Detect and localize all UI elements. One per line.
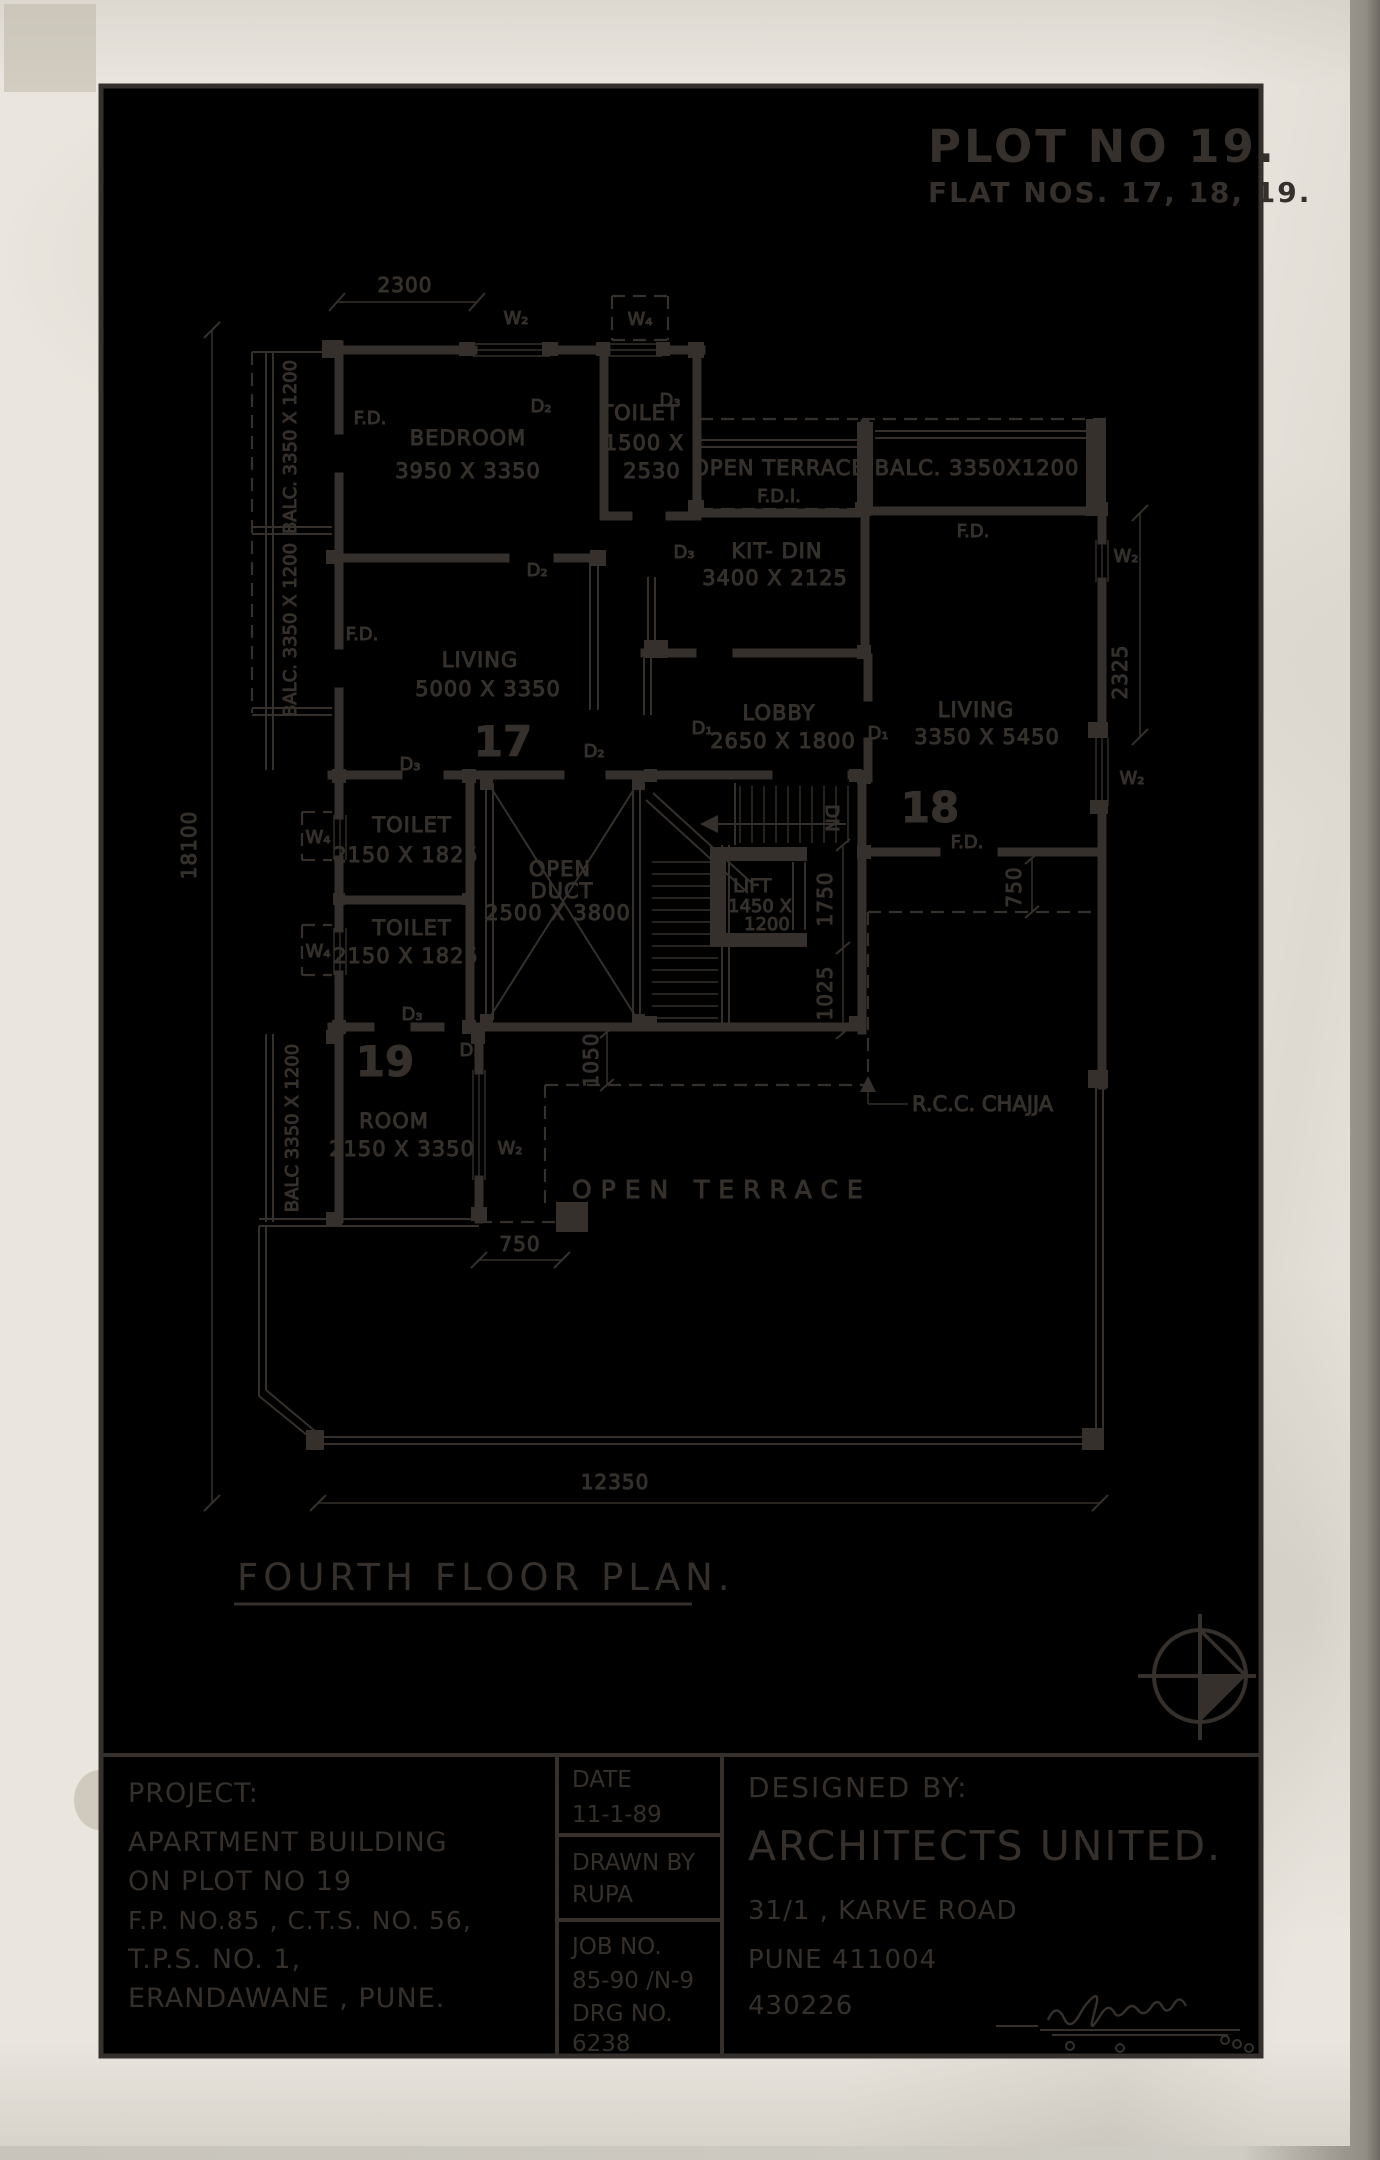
toilet-a-size: 2150 X 1825 <box>333 843 479 867</box>
door-tag-d2-c: D₂ <box>583 741 604 762</box>
open-terrace-top-label: OPEN TERRACE <box>692 456 865 480</box>
room19-label: ROOM <box>359 1109 429 1133</box>
firm-phone: 430226 <box>748 1991 853 2021</box>
job-no-label: JOB NO. <box>570 1934 662 1960</box>
flat-numbers-subtitle: FLAT NOS. 17, 18, 19. <box>928 176 1311 209</box>
door-tag-d1-b: D₁ <box>867 723 888 744</box>
window-tag-w2-right-upper: W₂ <box>1113 546 1138 567</box>
fd-label-balcony18: F.D. <box>957 521 990 542</box>
project-line-1: APARTMENT BUILDING <box>128 1827 448 1858</box>
dim-left: 18100 <box>177 811 201 880</box>
job-no-value: 85-90 /N-9 <box>572 1968 694 1994</box>
door-tag-d2-b: D₂ <box>526 560 547 581</box>
dim-top: 2300 <box>378 273 433 297</box>
fdi-label-terrace: F.D.I. <box>757 486 801 507</box>
date-value: 11-1-89 <box>572 1802 662 1828</box>
door-tag-d3-d: D₃ <box>401 1004 422 1025</box>
toilet-top-size-b: 2530 <box>623 459 680 483</box>
bedroom-label: BEDROOM <box>410 426 527 450</box>
dim-stair-lower: 1025 <box>813 966 837 1021</box>
drawing-frame <box>101 86 1261 2056</box>
lift-label: LIFT <box>733 875 772 897</box>
toilet-top-label: TOILET <box>599 401 679 425</box>
balcony-left-upper-label: BALC. 3350 X 1200 <box>280 360 301 534</box>
lobby-label: LOBBY <box>743 701 816 725</box>
living18-size: 3350 X 5450 <box>914 725 1060 749</box>
firm-name: ARCHITECTS UNITED. <box>748 1822 1222 1870</box>
living17-label: LIVING <box>442 648 518 672</box>
door-tag-d3-c: D₃ <box>399 754 420 775</box>
plan-title: FOURTH FLOOR PLAN. <box>237 1556 735 1599</box>
window-tag-w4-toilet-a: W₄ <box>305 827 330 848</box>
door-tag-d2-a: D₂ <box>530 396 551 417</box>
floor-plan-drawing: PLOT NO 19. FLAT NOS. 17, 18, 19. <box>0 0 1380 2160</box>
sheet-header: PLOT NO 19. FLAT NOS. 17, 18, 19. <box>928 120 1311 209</box>
project-label: PROJECT: <box>128 1778 259 1809</box>
open-duct-label-b: DUCT <box>530 879 593 903</box>
toilet-b-size: 2150 X 1825 <box>333 944 479 968</box>
window-tag-w4-top: W₄ <box>627 309 652 330</box>
door-tag-d3-b: D₃ <box>673 542 694 563</box>
kit-din-label: KIT- DIN <box>731 539 822 563</box>
living18-label: LIVING <box>938 698 1014 722</box>
project-line-5: ERANDAWANE , PUNE. <box>128 1983 445 2014</box>
kit-din-size: 3400 X 2125 <box>702 566 848 590</box>
dim-bottom: 12350 <box>581 1470 650 1494</box>
window-tag-w2-room19: W₂ <box>497 1138 522 1159</box>
toilet-a-label: TOILET <box>371 813 451 837</box>
balcony-left-lower-label: BALC. 3350 X 1200 <box>280 543 301 717</box>
window-tag-w2-top: W₂ <box>503 308 528 329</box>
scanned-drawing-page: { "header": { "plot_no": "PLOT NO 19.", … <box>0 0 1380 2160</box>
dim-terrace-gap: 1050 <box>579 1033 603 1088</box>
window-tag-w4-toilet-b: W₄ <box>305 941 330 962</box>
rcc-chajja-label: R.C.C. CHAJJA <box>912 1092 1054 1116</box>
open-duct-size: 2500 X 3800 <box>485 901 631 925</box>
drawn-by-label: DRAWN BY <box>572 1850 696 1876</box>
stair-down-label: DN <box>821 804 842 831</box>
drg-no-value: 6238 <box>572 2031 631 2057</box>
dim-balc-gap: 750 <box>499 1232 540 1256</box>
project-line-2: ON PLOT NO 19 <box>128 1866 352 1897</box>
firm-address-2: PUNE 411004 <box>748 1945 937 1975</box>
flat-number-18: 18 <box>901 783 959 832</box>
window-tag-w2-right-lower: W₂ <box>1119 768 1144 789</box>
date-label: DATE <box>572 1767 632 1793</box>
drawn-by-value: RUPA <box>572 1882 633 1908</box>
fd-label-corridor18: F.D. <box>951 832 984 853</box>
living17-size: 5000 X 3350 <box>415 677 561 701</box>
open-terrace-bottom-word-b: TERRACE <box>693 1175 872 1204</box>
fd-label-bedroom: F.D. <box>354 408 387 429</box>
dim-corridor: 750 <box>1002 866 1026 907</box>
balcony-top-label: BALC. 3350X1200 <box>875 456 1080 480</box>
door-tag-d1-c: D₁ <box>459 1040 480 1061</box>
flat-number-19: 19 <box>356 1037 414 1086</box>
plot-number-title: PLOT NO 19. <box>928 120 1277 173</box>
lift-size-b: 1200 <box>744 914 790 935</box>
fd-label-living17: F.D. <box>346 624 379 645</box>
flat-number-17: 17 <box>474 717 532 766</box>
drg-no-label: DRG NO. <box>572 2001 673 2027</box>
room19-size: 2150 X 3350 <box>329 1137 475 1161</box>
toilet-b-label: TOILET <box>371 916 451 940</box>
bedroom-size: 3950 X 3350 <box>395 459 541 483</box>
firm-address-1: 31/1 , KARVE ROAD <box>748 1896 1018 1926</box>
lobby-size: 2650 X 1800 <box>710 729 856 753</box>
open-duct-label-a: OPEN <box>529 857 591 881</box>
project-line-4: T.P.S. NO. 1, <box>127 1944 301 1975</box>
open-terrace-bottom-word-a: OPEN <box>572 1175 677 1204</box>
dim-right: 2325 <box>1108 645 1132 700</box>
plan-title-group: FOURTH FLOOR PLAN. <box>234 1556 735 1604</box>
designed-by-label: DESIGNED BY: <box>748 1771 969 1804</box>
project-line-3: F.P. NO.85 , C.T.S. NO. 56, <box>128 1906 472 1935</box>
dim-stair-upper: 1750 <box>813 872 837 927</box>
toilet-top-size-a: 1500 X <box>604 431 685 455</box>
balcony-19-label: BALC 3350 X 1200 <box>282 1044 303 1212</box>
